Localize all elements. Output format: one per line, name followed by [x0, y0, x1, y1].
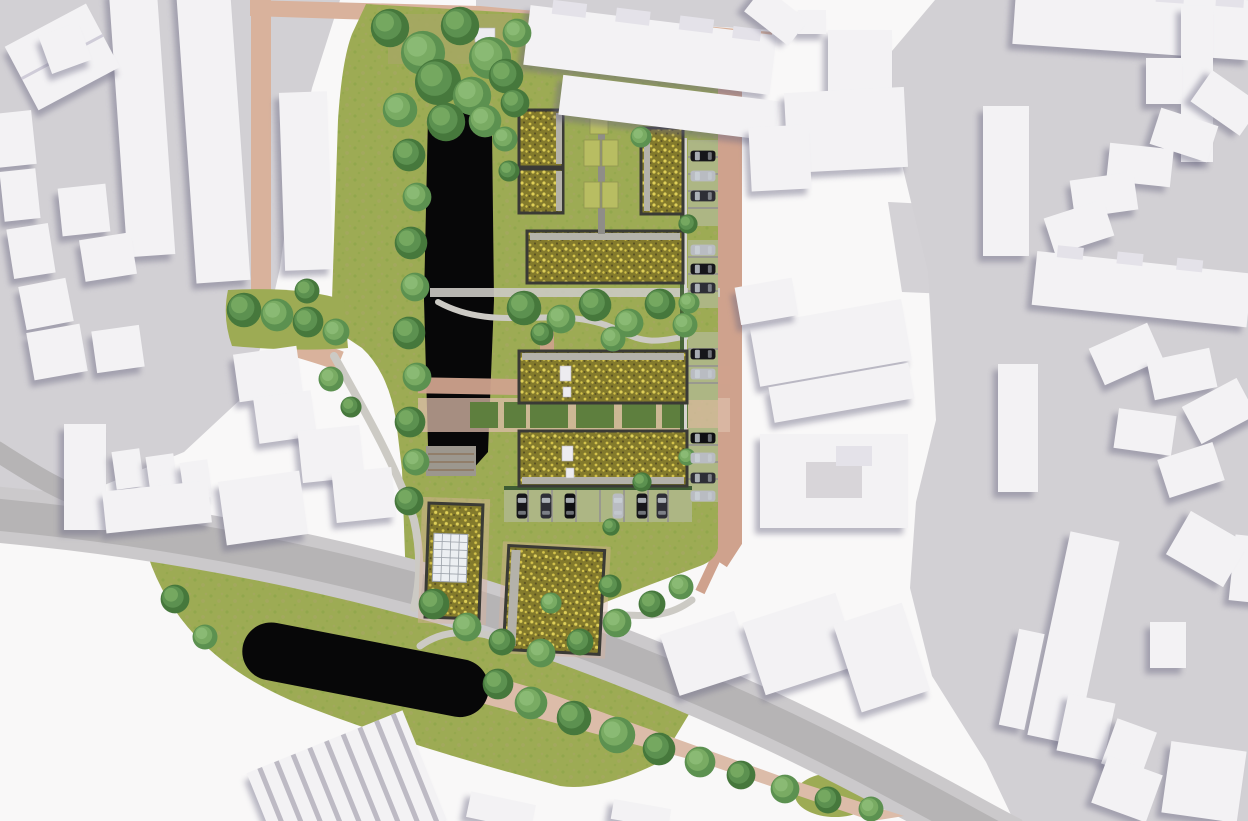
car	[691, 151, 716, 162]
site-plan-canvas	[0, 0, 1248, 821]
path-band-north	[430, 288, 720, 297]
block-c	[527, 231, 683, 283]
building-east-courtyard	[760, 434, 908, 528]
aerial-site-plan-rendering	[0, 0, 1248, 821]
block-d1	[519, 351, 687, 403]
block-a1	[519, 110, 563, 167]
block-d2	[519, 431, 687, 486]
pond-deck	[426, 446, 476, 476]
block-a2	[519, 169, 563, 213]
